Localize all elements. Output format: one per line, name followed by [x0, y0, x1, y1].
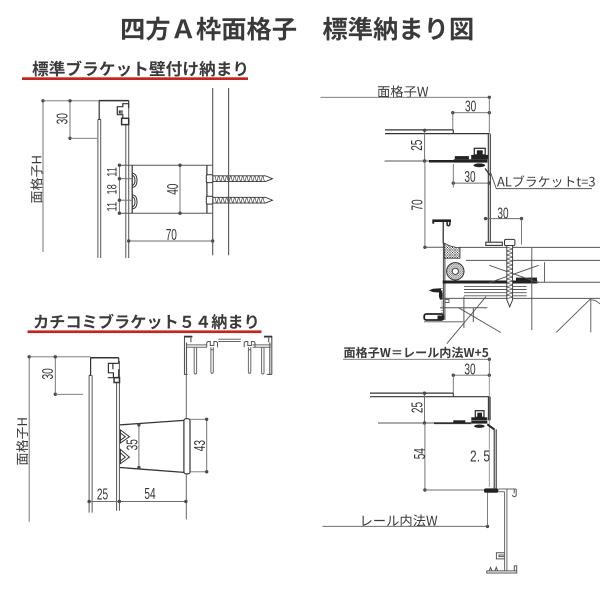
svg-text:30: 30	[39, 368, 57, 379]
svg-text:70: 70	[166, 226, 177, 244]
svg-text:30: 30	[464, 360, 475, 378]
svg-text:25: 25	[408, 402, 426, 413]
svg-text:11: 11	[104, 202, 121, 212]
svg-text:30: 30	[53, 113, 71, 124]
svg-text:25: 25	[408, 140, 426, 151]
svg-text:18: 18	[104, 184, 121, 195]
svg-text:11: 11	[104, 167, 121, 177]
svg-text:30: 30	[497, 204, 508, 222]
svg-text:30: 30	[464, 168, 475, 186]
svg-text:54: 54	[144, 485, 155, 503]
svg-text:43: 43	[191, 440, 209, 451]
svg-text:2. 5: 2. 5	[470, 448, 490, 465]
svg-text:30: 30	[465, 97, 476, 115]
svg-text:35: 35	[123, 439, 141, 450]
svg-text:70: 70	[408, 199, 426, 210]
svg-text:25: 25	[97, 485, 108, 503]
svg-text:40: 40	[164, 184, 182, 195]
svg-text:54: 54	[411, 448, 429, 459]
